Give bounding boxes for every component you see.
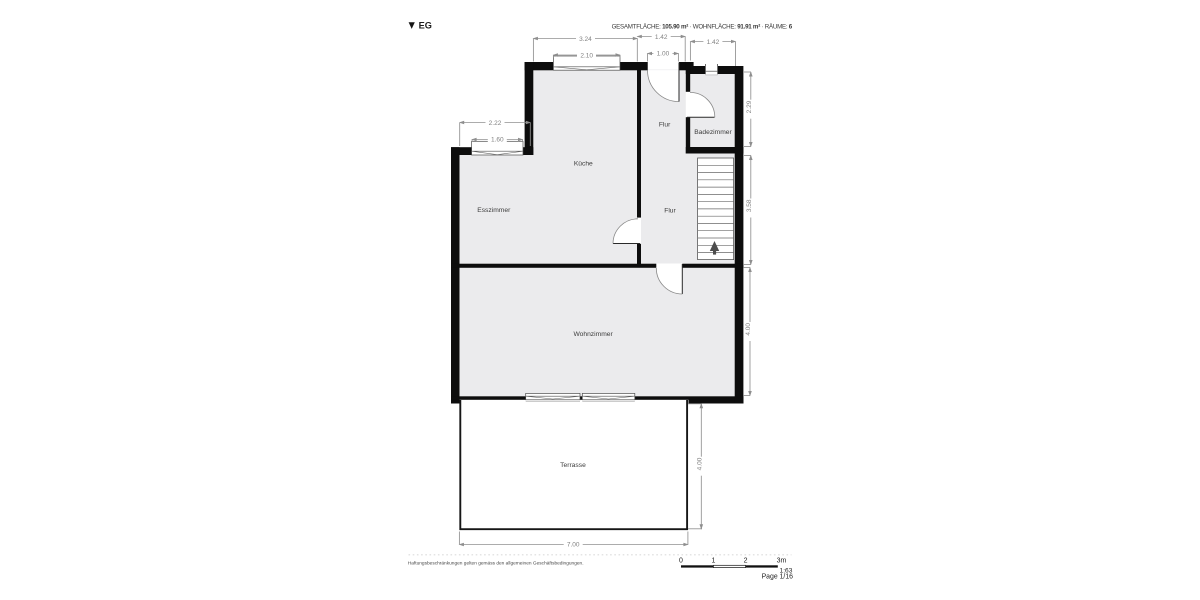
svg-text:1.00: 1.00 — [657, 51, 670, 58]
svg-text:3.24: 3.24 — [579, 36, 592, 43]
svg-text:Flur: Flur — [664, 207, 676, 214]
svg-text:2.29: 2.29 — [746, 100, 753, 113]
svg-text:0: 0 — [679, 558, 683, 565]
svg-text:1: 1 — [711, 558, 715, 565]
svg-text:Terrasse: Terrasse — [560, 462, 586, 469]
svg-text:1.60: 1.60 — [491, 137, 504, 144]
svg-text:Wohnzimmer: Wohnzimmer — [573, 331, 613, 338]
svg-text:GESAMTFLÄCHE: 105.90 m² · WOHN: GESAMTFLÄCHE: 105.90 m² · WOHNFLÄCHE: 91… — [612, 24, 793, 31]
svg-text:3.58: 3.58 — [746, 199, 753, 212]
svg-text:3m: 3m — [777, 558, 787, 565]
svg-text:2: 2 — [744, 558, 748, 565]
svg-text:Esszimmer: Esszimmer — [477, 207, 511, 214]
svg-text:4.00: 4.00 — [745, 323, 752, 336]
svg-text:Badezimmer: Badezimmer — [694, 129, 732, 136]
svg-text:2.22: 2.22 — [489, 120, 502, 127]
svg-text:Flur: Flur — [659, 121, 671, 128]
svg-text:Küche: Küche — [574, 161, 593, 168]
svg-text:4.00: 4.00 — [696, 457, 703, 470]
svg-text:2.10: 2.10 — [580, 52, 593, 59]
svg-text:1.42: 1.42 — [707, 39, 720, 46]
svg-text:Page 1/16: Page 1/16 — [762, 573, 794, 580]
svg-text:1.42: 1.42 — [655, 34, 668, 41]
svg-text:Haftungsbeschränkungen gelten: Haftungsbeschränkungen gelten gemäss den… — [408, 560, 584, 566]
svg-text:EG: EG — [419, 21, 432, 31]
svg-text:7.00: 7.00 — [567, 541, 580, 548]
